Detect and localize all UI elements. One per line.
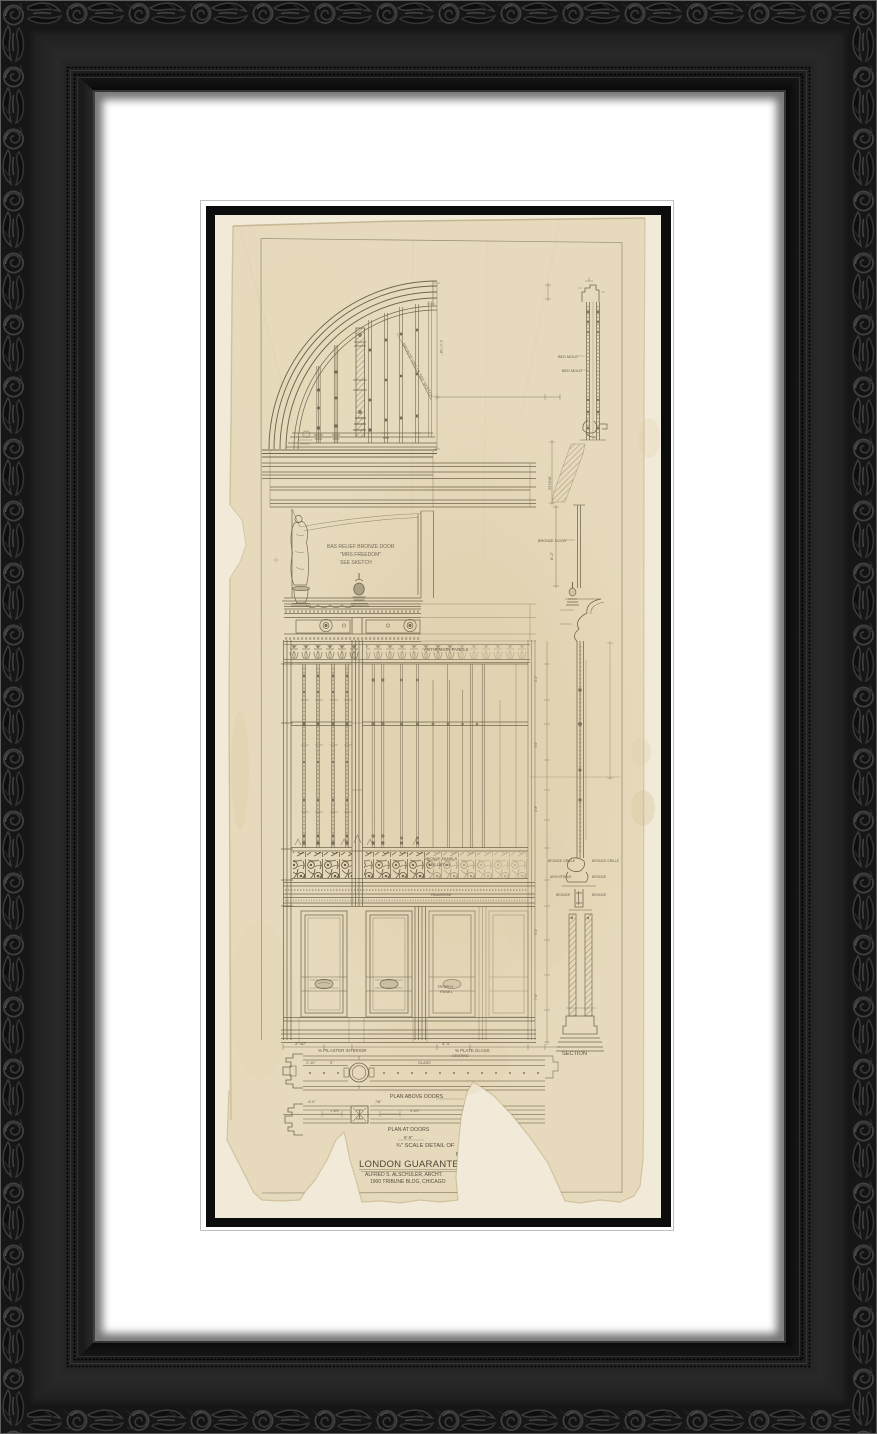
svg-text:3'-1": 3'-1" — [534, 929, 538, 935]
svg-text:2'-2": 2'-2" — [534, 676, 538, 682]
svg-text:ANTHEMION PANELS: ANTHEMION PANELS — [424, 647, 469, 652]
svg-text:BED MOLD: BED MOLD — [558, 355, 578, 359]
svg-text:3 1/2": 3 1/2" — [410, 1109, 420, 1113]
svg-text:SEE DETAIL: SEE DETAIL — [428, 862, 452, 867]
svg-text:SECTION: SECTION — [562, 1051, 587, 1057]
svg-text:1 3/4": 1 3/4" — [330, 1109, 340, 1113]
svg-text:GRATING: GRATING — [452, 1054, 469, 1058]
svg-text:℅ PLATE GLASS: ℅ PLATE GLASS — [455, 1048, 490, 1053]
svg-text:1900 TRIBUNE BLDG, CHICAGO: 1900 TRIBUNE BLDG, CHICAGO — [370, 1179, 446, 1185]
svg-text:TRAVERSE: TRAVERSE — [430, 892, 452, 897]
svg-text:BRONZE DOOR: BRONZE DOOR — [538, 539, 567, 543]
svg-text:SEE SKETCH: SEE SKETCH — [340, 560, 372, 566]
svg-text:PANEL: PANEL — [440, 989, 454, 994]
svg-text:7'-6": 7'-6" — [534, 994, 538, 1000]
svg-text:BRONZE: BRONZE — [592, 875, 607, 879]
svg-text:BAS RELIEF BRONZE DOOR: BAS RELIEF BRONZE DOOR — [327, 544, 395, 550]
svg-text:STONE: STONE — [547, 476, 552, 490]
svg-text:¾" SCALE DETAIL OF: ¾" SCALE DETAIL OF — [396, 1143, 455, 1149]
svg-text:"MRS FREEDOM": "MRS FREEDOM" — [340, 552, 381, 558]
svg-text:8'-6": 8'-6" — [404, 1135, 413, 1140]
svg-text:7/8": 7/8" — [375, 1100, 382, 1104]
svg-text:BRONZE: BRONZE — [592, 893, 607, 897]
svg-text:PLAN ABOVE DOORS: PLAN ABOVE DOORS — [390, 1094, 444, 1100]
svg-text:ALFRED S. ALSCHULER, ARCHT.: ALFRED S. ALSCHULER, ARCHT. — [365, 1172, 443, 1178]
svg-text:PLAN AT DOORS: PLAN AT DOORS — [388, 1127, 430, 1133]
svg-text:GLASS: GLASS — [418, 1061, 431, 1065]
svg-text:℅ PILASTER INTERIOR: ℅ PILASTER INTERIOR — [318, 1048, 367, 1053]
svg-text:ARCHITRAVE: ARCHITRAVE — [550, 875, 572, 879]
svg-text:3'-6": 3'-6" — [534, 742, 538, 748]
svg-text:BED MOLD: BED MOLD — [562, 369, 582, 373]
svg-text:2'-0 7/8": 2'-0 7/8" — [439, 340, 444, 355]
svg-text:BRONZE: BRONZE — [556, 893, 571, 897]
svg-text:BRONZE PANELS: BRONZE PANELS — [424, 856, 458, 861]
svg-text:8'-2": 8'-2" — [549, 551, 554, 560]
svg-text:BRONZE GRILLE: BRONZE GRILLE — [592, 859, 620, 863]
svg-text:LONDON GUARANTEE: LONDON GUARANTEE — [359, 1159, 466, 1170]
svg-text:BRONZE GRILLE: BRONZE GRILLE — [548, 859, 576, 863]
svg-text:4'-1": 4'-1" — [442, 1041, 451, 1046]
svg-text:4'-0": 4'-0" — [308, 1100, 316, 1104]
svg-text:2'-8": 2'-8" — [534, 806, 538, 812]
svg-text:2'-10": 2'-10" — [306, 1061, 316, 1065]
svg-text:2'-10": 2'-10" — [295, 1041, 307, 1046]
